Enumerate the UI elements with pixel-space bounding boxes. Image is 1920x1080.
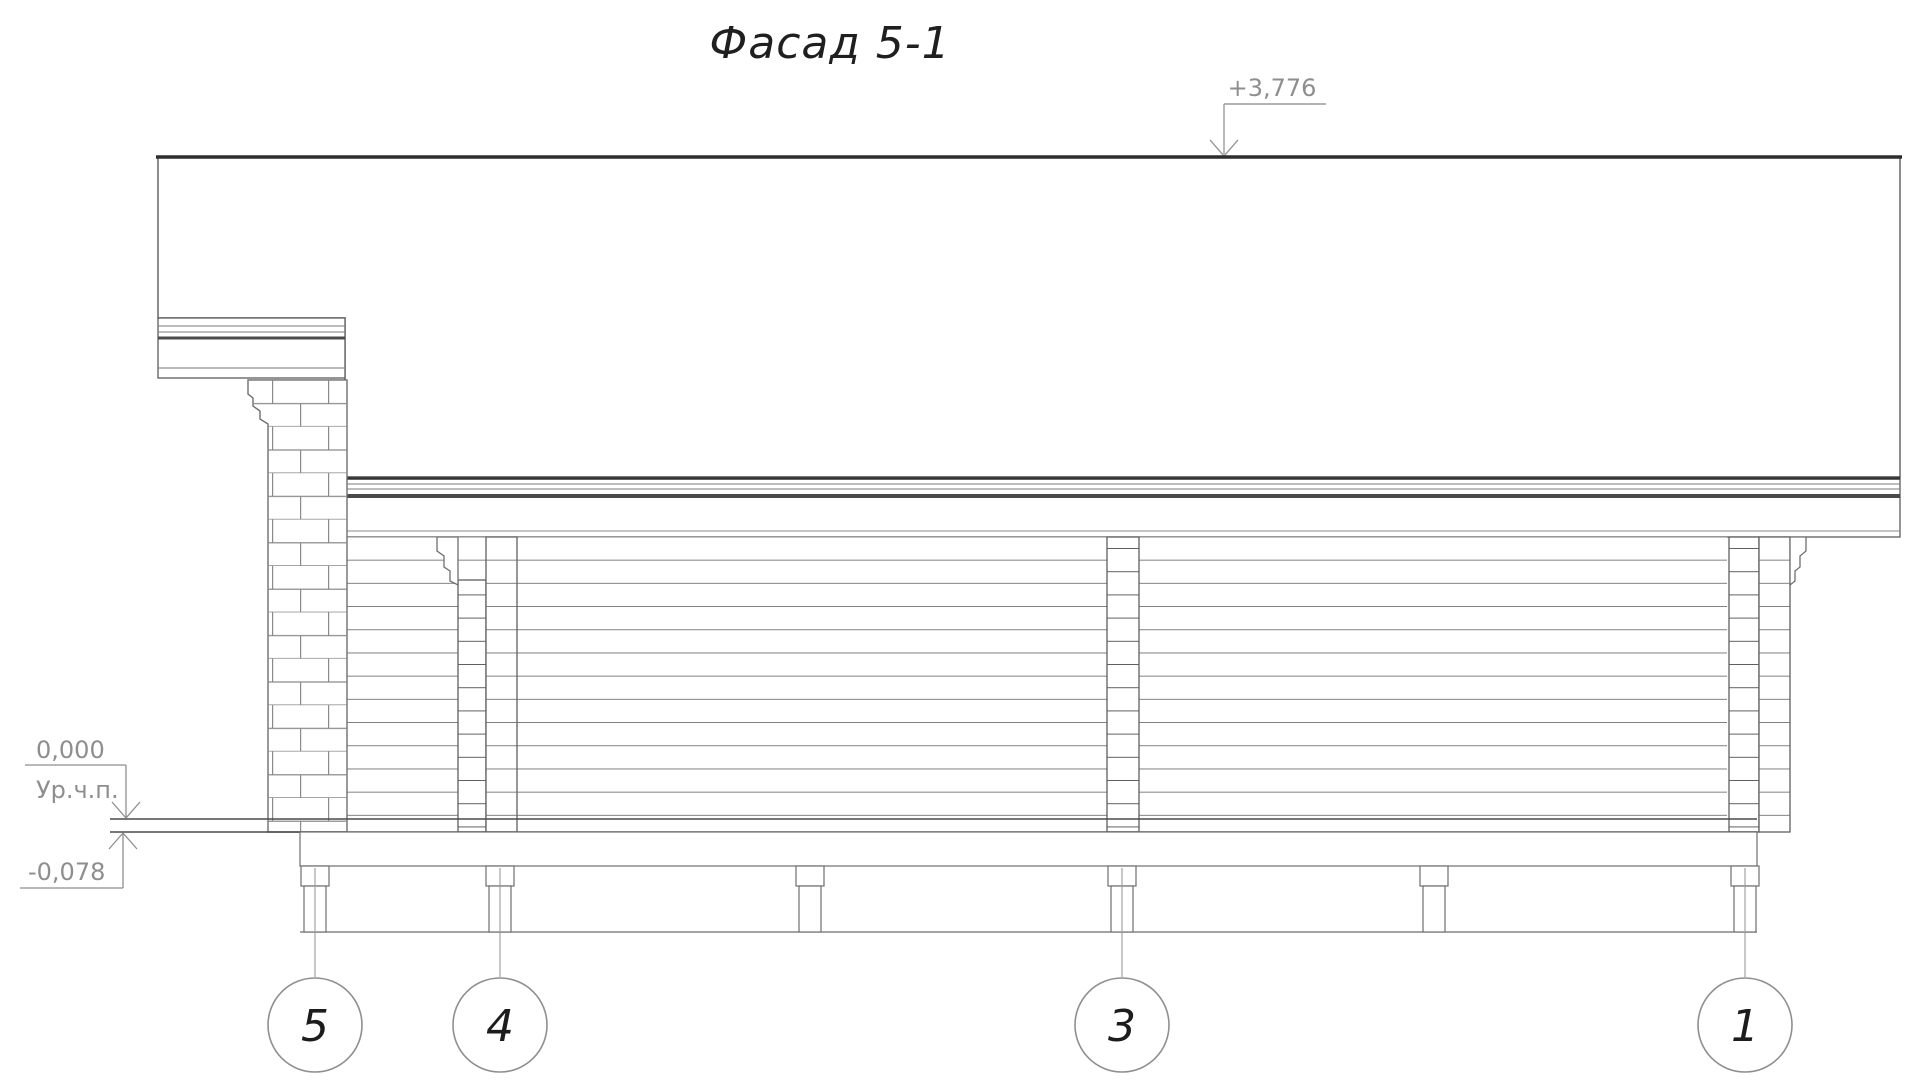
porch-cornice (158, 318, 345, 378)
post-mid-right (1420, 866, 1448, 932)
axis-bubble-3: 3 (1075, 978, 1169, 1072)
log-end-stack-axis1 (1729, 537, 1806, 832)
roof-outline (158, 157, 1900, 477)
chimney (248, 380, 347, 832)
log-wall (347, 537, 1727, 832)
axis-bubble-1: 1 (1698, 978, 1792, 1072)
floor-level-value: 0,000 (36, 736, 105, 764)
axis-number: 1 (1731, 1001, 1759, 1052)
axis-number: 3 (1108, 1001, 1136, 1052)
axis-number: 4 (486, 1001, 514, 1052)
drawing-title: Фасад 5-1 (709, 18, 950, 69)
facade-drawing-sheet: Фасад 5-1 +3,776 (0, 0, 1920, 1080)
base-level-value: -0,078 (28, 858, 105, 886)
plinth-board (300, 832, 1757, 866)
roof-elevation-value: +3,776 (1228, 74, 1317, 102)
log-end-stack-axis3 (1107, 537, 1139, 832)
axis-bubble-5: 5 (268, 978, 362, 1072)
foundation-posts (301, 866, 1759, 932)
axis-number: 5 (301, 1001, 329, 1052)
corbel-axis1 (1790, 537, 1806, 585)
floor-level-label: Ур.ч.п. (36, 776, 119, 804)
main-fascia (345, 477, 1900, 537)
facade-elevation-svg: Фасад 5-1 +3,776 (0, 0, 1920, 1080)
post-mid-left (796, 866, 824, 932)
roof-elevation-mark (1210, 104, 1326, 156)
axis-bubble-4: 4 (453, 978, 547, 1072)
floor-level-mark: 0,000 Ур.ч.п. (25, 736, 140, 818)
base-level-mark: -0,078 (20, 833, 137, 888)
axis-leaders (315, 868, 1745, 977)
